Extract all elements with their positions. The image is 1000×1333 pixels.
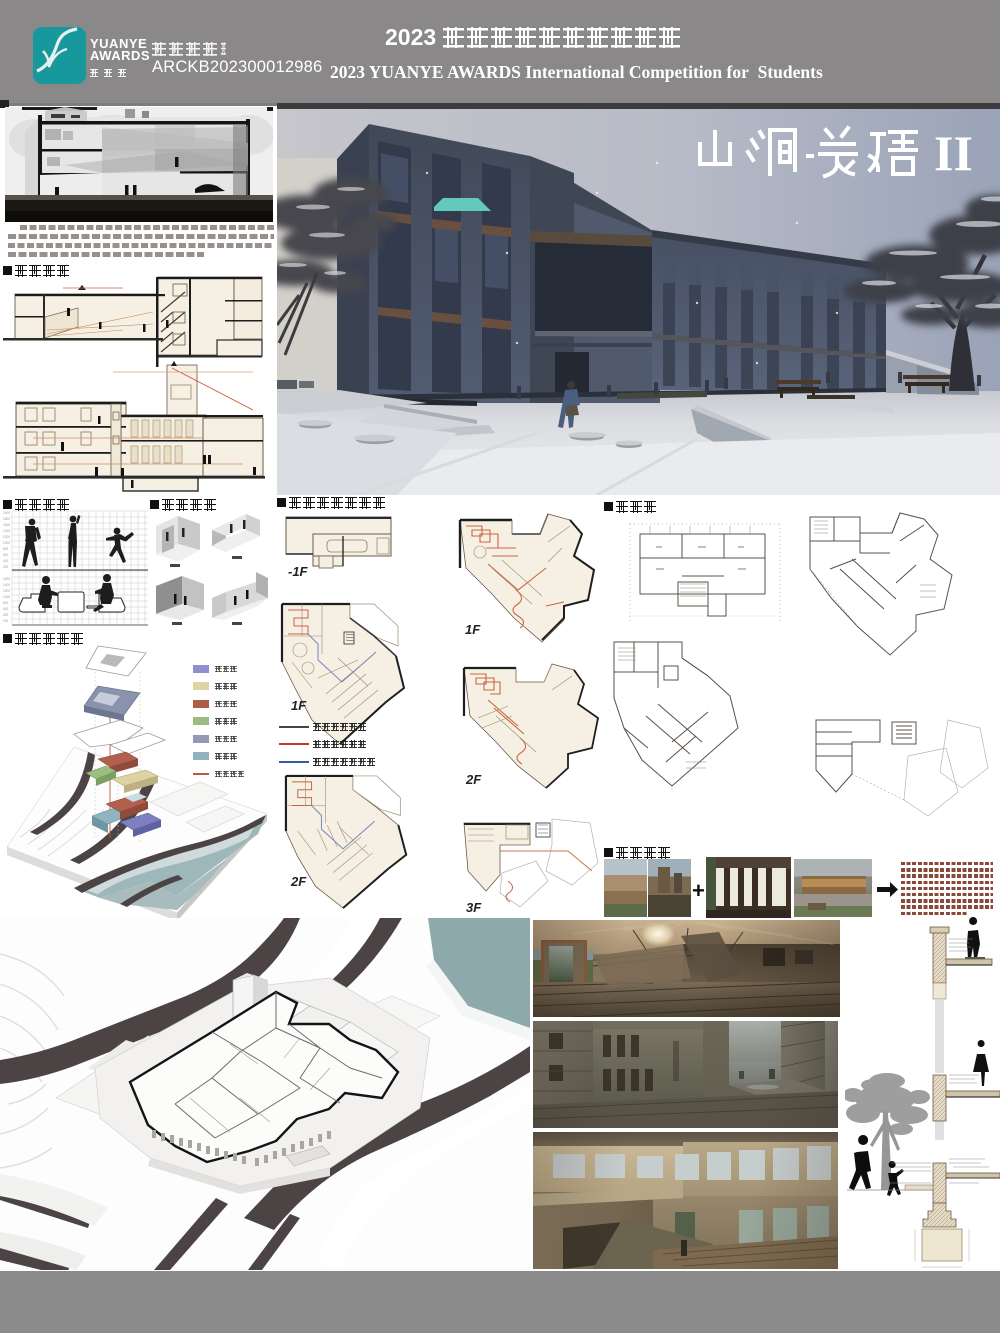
svg-text:400: 400 [3,559,9,563]
svg-text:1000: 1000 [3,595,10,599]
svg-text:400: 400 [3,613,9,617]
svg-text:xxxx: xxxx [656,566,664,571]
svg-text:1200: 1200 [3,535,10,539]
svg-text:1400: 1400 [3,583,10,587]
svg-text:xxx: xxx [738,544,744,549]
svg-text:1600: 1600 [3,577,10,581]
svg-text:800: 800 [3,547,9,551]
svg-text:1400: 1400 [3,529,10,533]
svg-text:II: II [934,125,973,181]
svg-text:1600: 1600 [3,523,10,527]
svg-text:200: 200 [3,619,9,623]
svg-text:200: 200 [3,565,9,569]
svg-text:xxxx: xxxx [738,566,746,571]
svg-text:1800: 1800 [3,517,10,521]
svg-text:600: 600 [3,553,9,557]
svg-text:2000: 2000 [3,511,10,515]
svg-text:600: 600 [3,607,9,611]
svg-text:800: 800 [3,601,9,605]
svg-text:1200: 1200 [3,589,10,593]
svg-text:xxxx: xxxx [698,544,706,549]
svg-text:1000: 1000 [3,541,10,545]
svg-text:xxx: xxx [656,544,662,549]
